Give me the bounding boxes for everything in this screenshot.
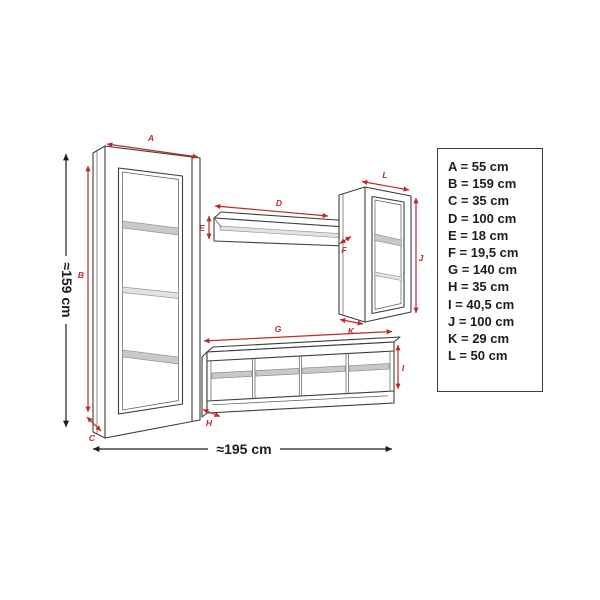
legend-item: L = 50 cm xyxy=(448,347,542,364)
overall-width-label: ≈195 cm xyxy=(216,441,271,457)
dimension-label-g: G xyxy=(275,324,282,334)
legend-item: B = 159 cm xyxy=(448,175,542,192)
dimension-label-i: I xyxy=(402,363,405,373)
dimension-label-a: A xyxy=(147,133,154,143)
legend-item: D = 100 cm xyxy=(448,210,542,227)
dimension-label-f: F xyxy=(341,245,347,255)
overall-width-dimension: ≈195 cm xyxy=(93,441,392,457)
wall-cabinet-drawing xyxy=(339,187,411,322)
legend-item: F = 19,5 cm xyxy=(448,244,542,261)
legend-item: K = 29 cm xyxy=(448,330,542,347)
legend-item: H = 35 cm xyxy=(448,278,542,295)
dimension-label-l: L xyxy=(382,170,387,180)
legend-item: I = 40,5 cm xyxy=(448,296,542,313)
overall-height-label: ≈159 cm xyxy=(59,262,75,317)
tv-stand-drawing xyxy=(202,337,400,417)
dimension-label-c: C xyxy=(89,433,96,443)
dimension-label-j: J xyxy=(419,253,424,263)
legend-item: A = 55 cm xyxy=(448,158,542,175)
legend-item: C = 35 cm xyxy=(448,192,542,209)
dimension-label-h: H xyxy=(206,418,213,428)
legend-item: G = 140 cm xyxy=(448,261,542,278)
furniture-dimension-diagram: A B C D E F G H I J K L ≈159 cm ≈195 cm xyxy=(0,0,600,600)
dimension-label-b: B xyxy=(78,270,84,280)
tall-cabinet-drawing xyxy=(93,146,200,438)
dimension-legend: A = 55 cm B = 159 cm C = 35 cm D = 100 c… xyxy=(437,148,543,392)
legend-item: E = 18 cm xyxy=(448,227,542,244)
wall-shelf-drawing xyxy=(214,212,352,246)
overall-height-dimension: ≈159 cm xyxy=(59,154,75,427)
dimension-label-k: K xyxy=(348,326,355,336)
dimension-label-d: D xyxy=(276,198,282,208)
dimension-label-e: E xyxy=(199,223,205,233)
legend-item: J = 100 cm xyxy=(448,313,542,330)
